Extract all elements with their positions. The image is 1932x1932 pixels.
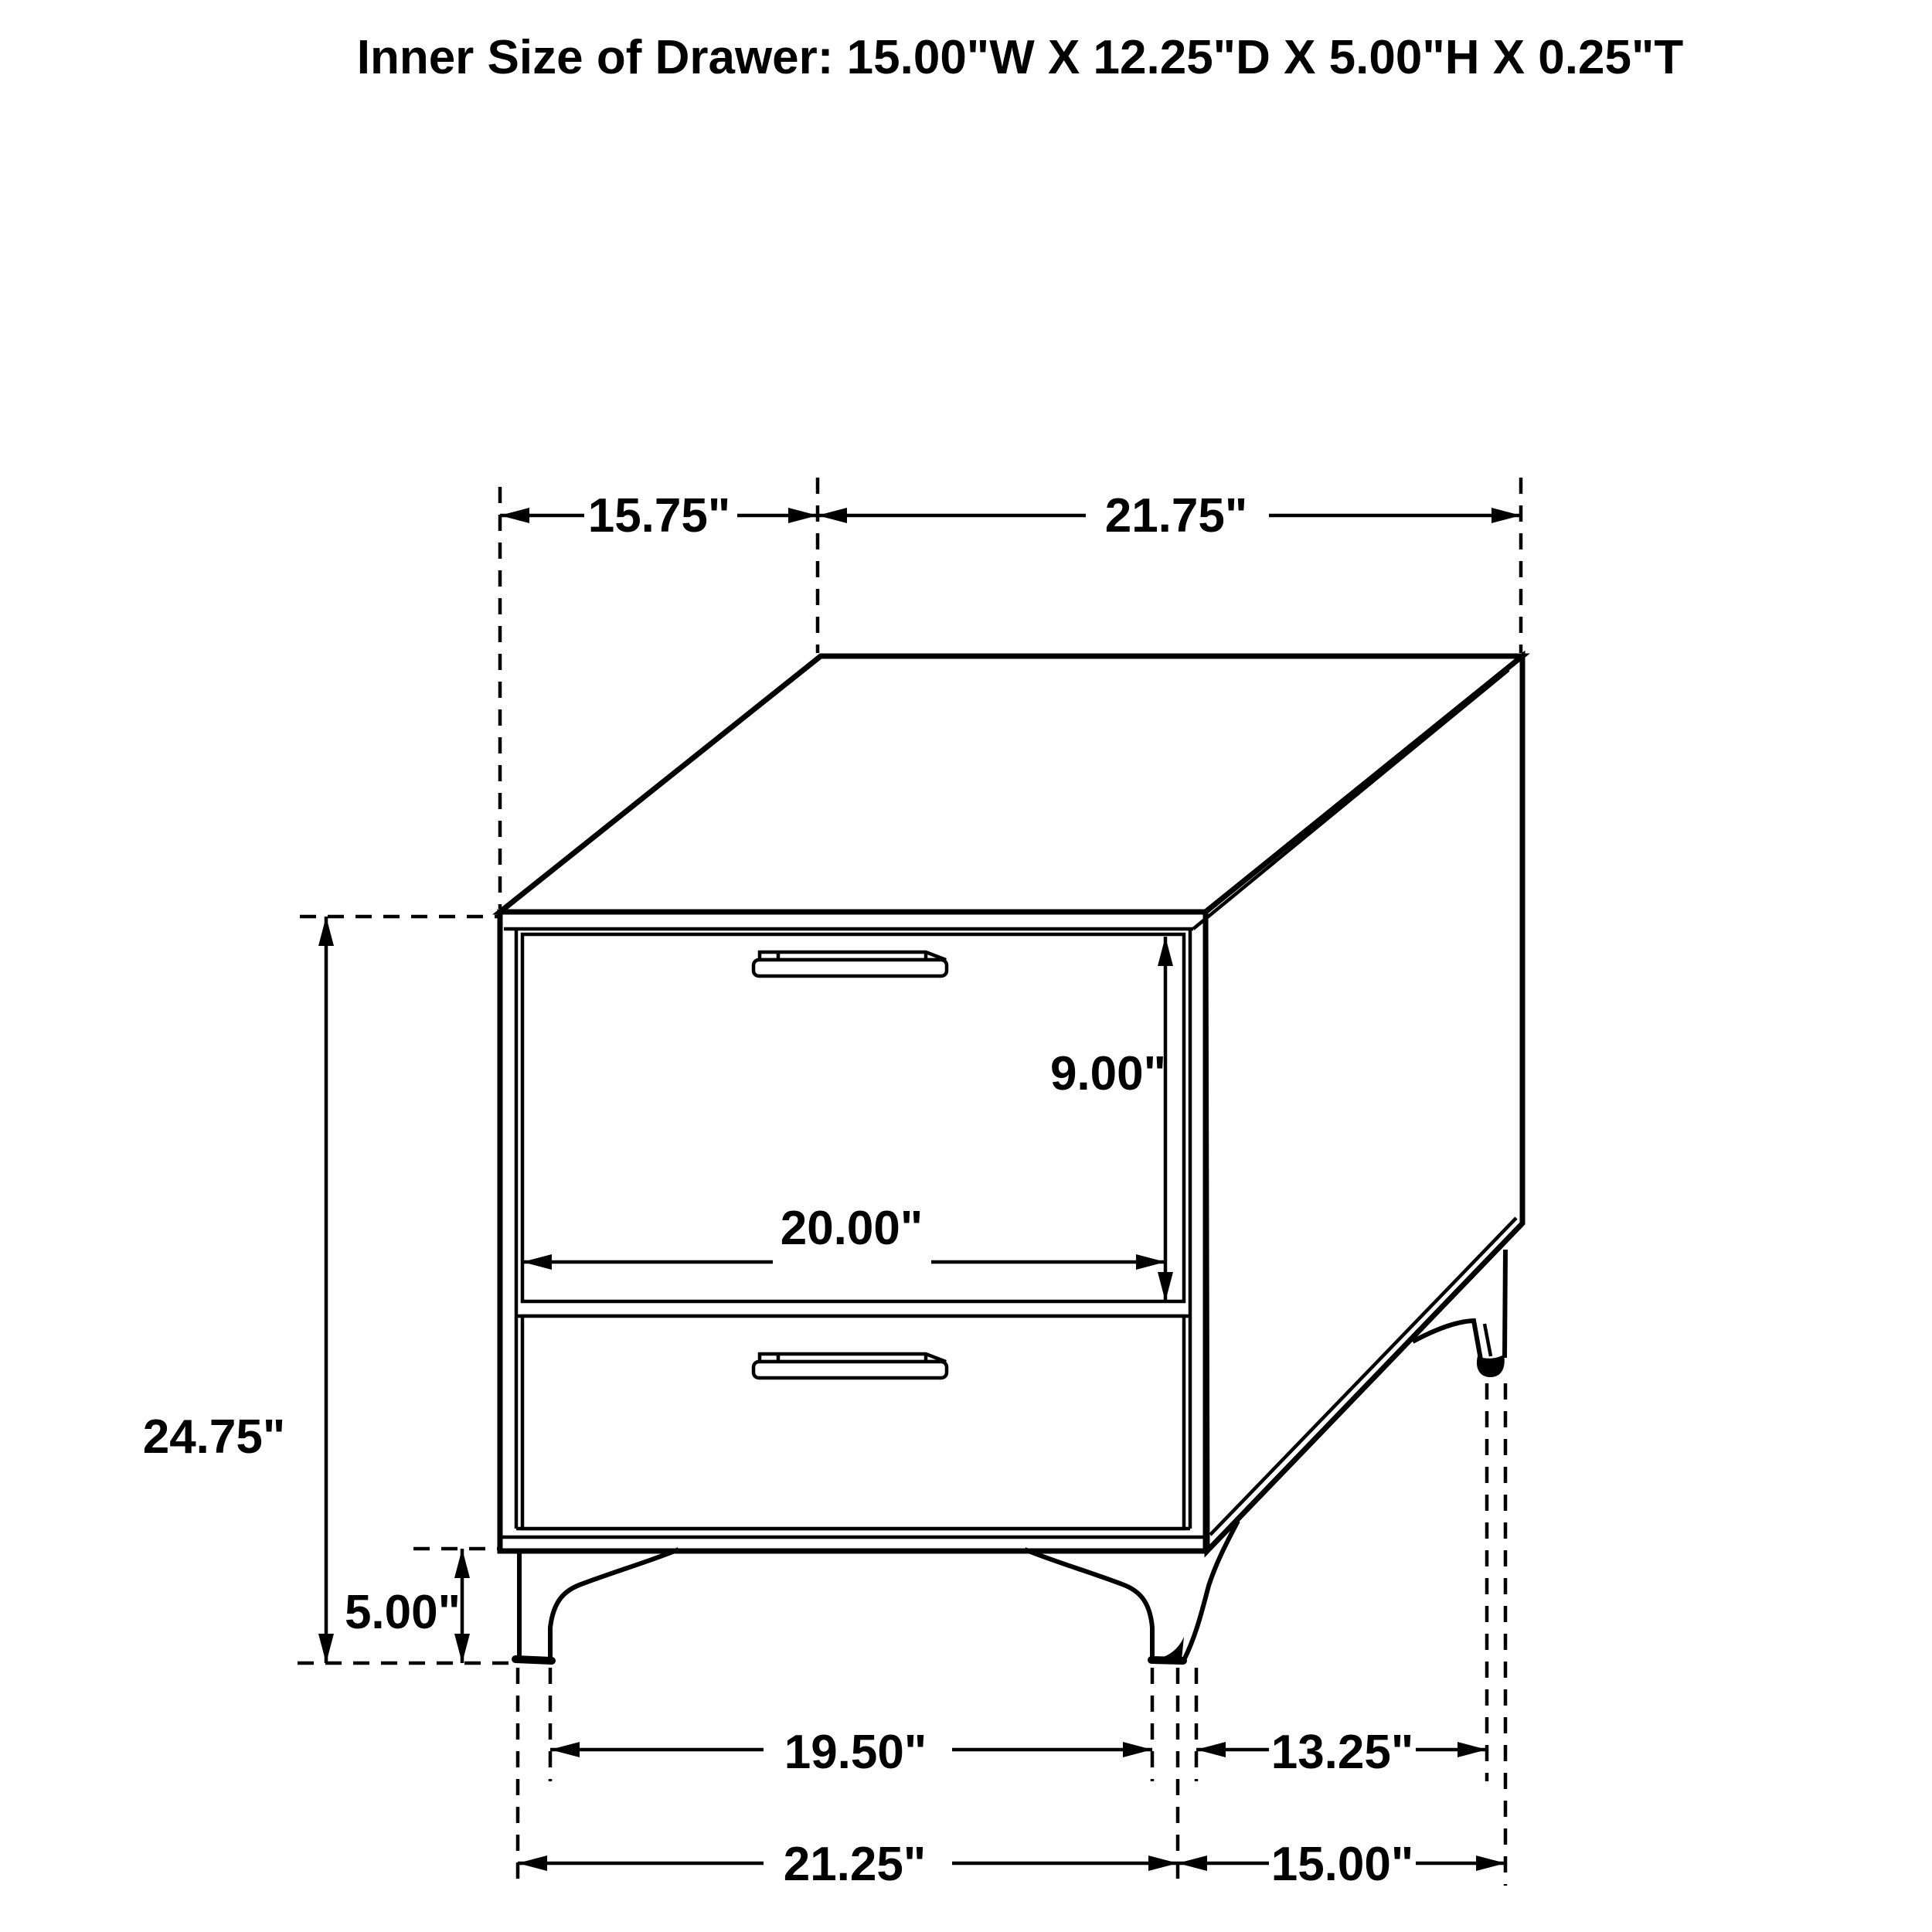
front-right-leg-inner-curve bbox=[1025, 1549, 1152, 1660]
handle-bar bbox=[753, 960, 947, 976]
arrowhead-left bbox=[818, 508, 847, 523]
arrowhead-left bbox=[518, 1855, 547, 1871]
dim-front-feet-inner-span: 19.50" bbox=[550, 1726, 1152, 1779]
dim-label-drawer-width: 20.00" bbox=[781, 1202, 923, 1255]
arrowhead-up bbox=[318, 917, 334, 946]
dim-front-width: 21.25" bbox=[518, 1838, 1178, 1891]
arrowhead-right bbox=[1148, 1855, 1178, 1871]
arrowhead-right bbox=[788, 508, 818, 523]
bottom-drawer-front bbox=[522, 1316, 1184, 1529]
arrowhead-right bbox=[1476, 1855, 1505, 1871]
arrowhead-up bbox=[454, 1549, 470, 1578]
back-right-leg-outer-edge bbox=[1505, 1250, 1505, 1358]
front-left-leg-inner-curve bbox=[550, 1549, 679, 1660]
arrowhead-right bbox=[1492, 508, 1521, 523]
dim-label-leg-height: 5.00" bbox=[345, 1586, 461, 1639]
dim-overall-height: 24.75" bbox=[143, 917, 334, 1663]
front-right-foot bbox=[1151, 1660, 1183, 1661]
nightstand-dimension-diagram: Inner Size of Drawer: 15.00"W X 12.25"D … bbox=[0, 0, 1932, 1932]
front-left-foot bbox=[515, 1659, 552, 1661]
arrowhead-left bbox=[1178, 1855, 1207, 1871]
dim-top-width: 21.75" bbox=[818, 489, 1521, 543]
dim-side-depth: 15.00" bbox=[1178, 1838, 1505, 1891]
dim-label-top-depth: 15.75" bbox=[588, 489, 731, 543]
arrowhead-down bbox=[318, 1634, 334, 1663]
back-right-foot-shade bbox=[1477, 1355, 1505, 1377]
arrowhead-left bbox=[550, 1742, 580, 1757]
arrowhead-left bbox=[500, 508, 529, 523]
dim-side-feet-span: 13.25" bbox=[1196, 1726, 1487, 1779]
bottom-drawer-handle bbox=[753, 1354, 947, 1378]
dim-label-overall-height: 24.75" bbox=[143, 1410, 286, 1464]
dim-leg-height: 5.00" bbox=[345, 1549, 470, 1663]
back-right-leg-post-line bbox=[1485, 1324, 1491, 1356]
arrowhead-right bbox=[1458, 1742, 1487, 1757]
technical-drawing-page: Inner Size of Drawer: 15.00"W X 12.25"D … bbox=[0, 0, 1932, 1932]
arrowhead-right bbox=[1123, 1742, 1152, 1757]
top-drawer-handle bbox=[753, 952, 947, 976]
dim-label-front-feet-inner-span: 19.50" bbox=[784, 1726, 927, 1779]
handle-bar bbox=[753, 1362, 947, 1378]
dim-label-top-width: 21.75" bbox=[1105, 489, 1248, 543]
dim-top-depth: 15.75" bbox=[500, 489, 818, 543]
front-left-leg bbox=[515, 1549, 679, 1661]
arrowhead-left bbox=[1196, 1742, 1226, 1757]
dim-label-front-width: 21.25" bbox=[784, 1838, 927, 1891]
dim-label-side-feet-span: 13.25" bbox=[1271, 1726, 1414, 1779]
drawing-title: Inner Size of Drawer: 15.00"W X 12.25"D … bbox=[357, 31, 1684, 84]
dim-label-side-depth: 15.00" bbox=[1271, 1838, 1414, 1891]
dim-label-drawer-height: 9.00" bbox=[1050, 1047, 1166, 1100]
